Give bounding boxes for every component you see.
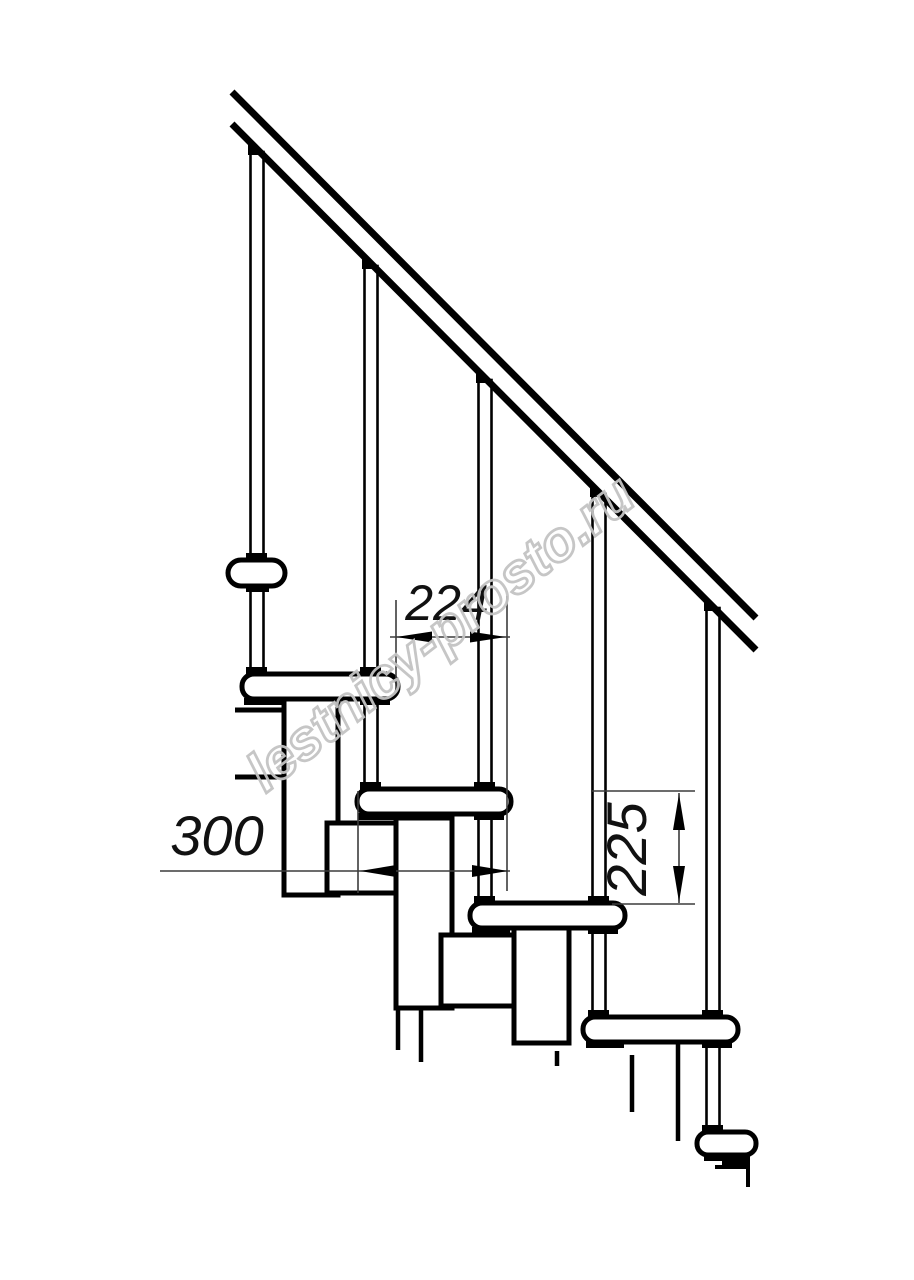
arrowhead-up xyxy=(673,794,685,830)
tread-6 xyxy=(697,1132,756,1155)
tread-5 xyxy=(583,1017,738,1042)
bottom-step-lines xyxy=(715,1167,748,1187)
tread-4 xyxy=(470,903,625,928)
module-box-5 xyxy=(514,925,569,1043)
baluster-5 xyxy=(707,608,720,1133)
tread-3 xyxy=(357,789,511,814)
dimension-225-label: 225 xyxy=(595,801,658,896)
handrail-top-line xyxy=(232,92,756,618)
module-box-2 xyxy=(327,823,404,893)
dimension-225: 225 xyxy=(592,791,695,904)
watermark-text: lestnicy-prosto.ru xyxy=(234,462,645,803)
baluster-4 xyxy=(593,494,606,1018)
baluster-1 xyxy=(251,152,264,675)
arrowhead-down xyxy=(673,866,685,902)
staircase-drawing-svg: 224 300 225 lestnicy-prosto.ru xyxy=(0,0,914,1280)
baluster-3 xyxy=(479,380,492,904)
staircase-drawing-page: 224 300 225 lestnicy-prosto.ru xyxy=(0,0,914,1280)
module-box-4 xyxy=(441,935,517,1006)
dimension-300-label: 300 xyxy=(170,804,263,867)
tread-1 xyxy=(228,560,285,586)
